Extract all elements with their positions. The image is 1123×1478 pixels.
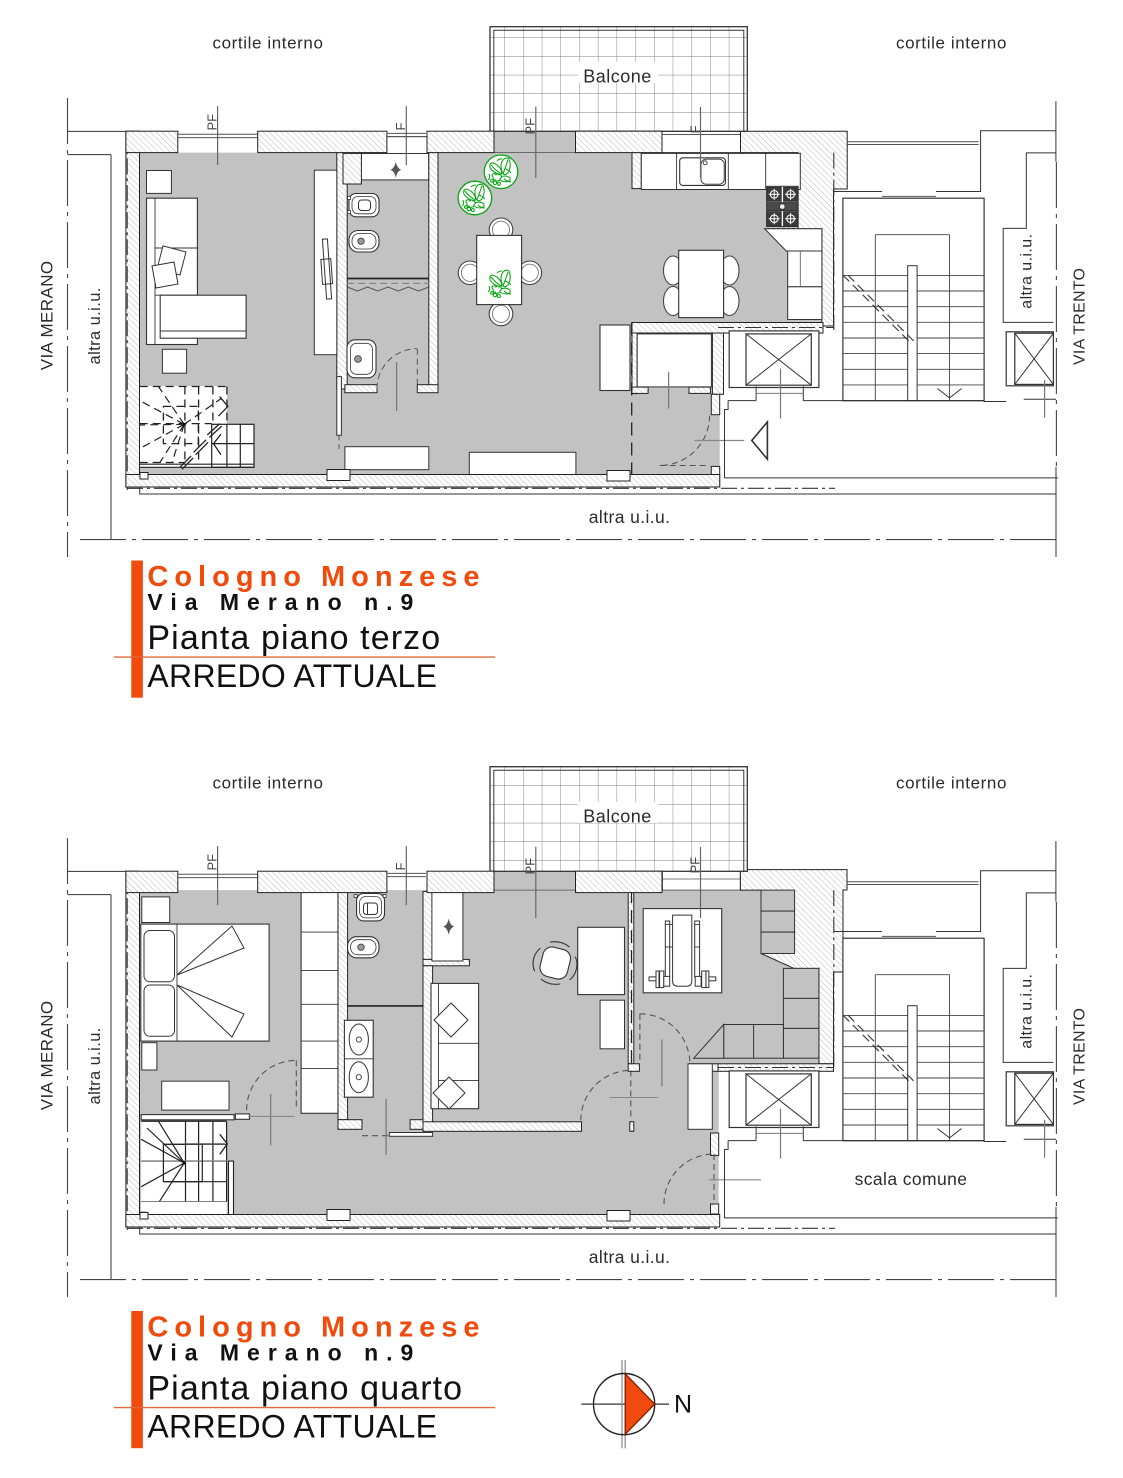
- svg-text:Via Merano n.9: Via Merano n.9: [147, 1339, 421, 1365]
- svg-text:scala comune: scala comune: [855, 1169, 968, 1189]
- svg-text:PF: PF: [205, 114, 220, 131]
- svg-text:altra u.i.u.: altra u.i.u.: [86, 287, 104, 364]
- svg-text:F: F: [393, 863, 408, 871]
- svg-text:PF: PF: [523, 858, 538, 875]
- svg-text:VIA MERANO: VIA MERANO: [38, 1000, 57, 1110]
- svg-text:PF: PF: [688, 857, 703, 874]
- svg-text:altra u.i.u.: altra u.i.u.: [1019, 234, 1036, 309]
- svg-text:PF: PF: [523, 118, 538, 135]
- svg-text:VIA TRENTO: VIA TRENTO: [1072, 1008, 1089, 1105]
- svg-text:F: F: [393, 123, 408, 131]
- svg-text:altra u.i.u.: altra u.i.u.: [1019, 974, 1036, 1049]
- svg-text:Via Merano n.9: Via Merano n.9: [147, 589, 421, 615]
- svg-text:Pianta piano terzo: Pianta piano terzo: [147, 619, 441, 657]
- svg-text:cortile interno: cortile interno: [896, 774, 1007, 793]
- svg-text:PF: PF: [205, 854, 220, 871]
- svg-text:altra u.i.u.: altra u.i.u.: [86, 1027, 104, 1104]
- svg-text:ARREDO ATTUALE: ARREDO ATTUALE: [147, 658, 437, 694]
- svg-text:F: F: [688, 126, 703, 134]
- svg-text:ARREDO ATTUALE: ARREDO ATTUALE: [147, 1409, 437, 1445]
- svg-text:altra u.i.u.: altra u.i.u.: [589, 1247, 671, 1267]
- svg-text:cortile interno: cortile interno: [896, 34, 1007, 53]
- svg-text:VIA TRENTO: VIA TRENTO: [1072, 268, 1089, 365]
- svg-text:Balcone: Balcone: [583, 807, 652, 827]
- svg-text:N: N: [674, 1391, 692, 1419]
- svg-text:Pianta piano quarto: Pianta piano quarto: [147, 1370, 463, 1408]
- svg-text:cortile interno: cortile interno: [212, 34, 323, 53]
- svg-text:Balcone: Balcone: [583, 67, 652, 87]
- svg-text:VIA MERANO: VIA MERANO: [38, 260, 57, 370]
- svg-text:cortile interno: cortile interno: [212, 774, 323, 793]
- svg-text:altra u.i.u.: altra u.i.u.: [589, 507, 671, 527]
